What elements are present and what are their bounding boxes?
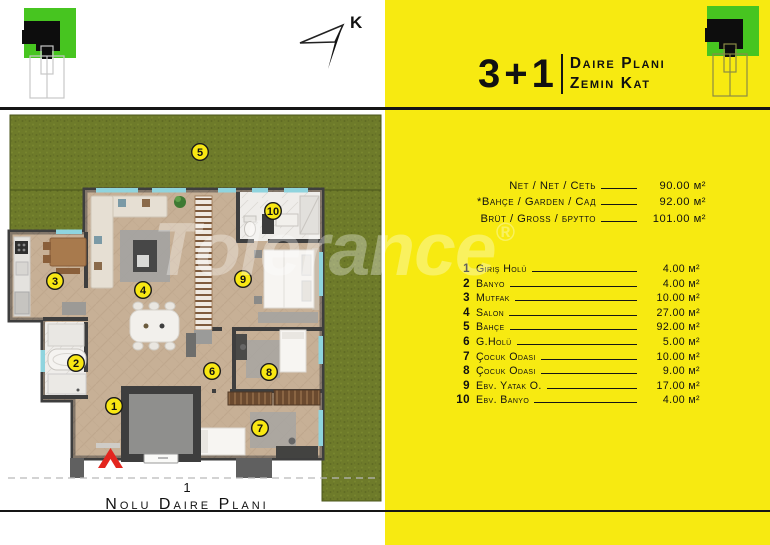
wall-stub-left <box>70 458 84 478</box>
room-label: Mutfak <box>476 292 510 304</box>
room-area: 17.00 м² <box>642 380 700 392</box>
leader-line <box>541 366 637 375</box>
leader-line <box>515 293 637 302</box>
leader-line <box>601 180 637 189</box>
site-keyplan-right <box>697 4 763 98</box>
room-row: 9Ebv. Yatak O.17.00 м² <box>452 379 700 392</box>
plan-title: Daire Planı <box>570 54 665 74</box>
room-number: 5 <box>452 320 470 333</box>
room-label: Salon <box>476 307 504 319</box>
slatted-screen <box>195 196 212 330</box>
room-area: 9.00 м² <box>642 365 700 377</box>
area-label: *Bahçe / Garden / Сад <box>466 196 596 208</box>
wall-stub-right <box>236 458 272 478</box>
room-badge-3: 3 <box>47 273 64 290</box>
leader-line <box>532 263 637 272</box>
leader-line <box>534 395 637 404</box>
room-number: 8 <box>452 364 470 377</box>
svg-text:10: 10 <box>267 206 279 218</box>
leader-line <box>547 380 637 389</box>
room-area: 4.00 м² <box>642 278 700 290</box>
entry-threshold <box>96 443 120 448</box>
header-divider <box>561 54 563 94</box>
room-row: 8Çocuk Odası9.00 м² <box>452 364 700 377</box>
hall-mat <box>194 330 212 344</box>
room-area: 5.00 м² <box>642 336 700 348</box>
room-label: Çocuk Odası <box>476 365 536 377</box>
room-area: 4.00 м² <box>642 263 700 275</box>
room-label: G.Holü <box>476 336 512 348</box>
room-row: 1Giriş Holü4.00 м² <box>452 262 700 275</box>
area-value: 90.00 м² <box>642 180 706 192</box>
room-number: 10 <box>452 393 470 406</box>
area-summary: Net / Net / Сеть 90.00 м² *Bahçe / Garde… <box>466 180 706 229</box>
room-number: 1 <box>452 262 470 275</box>
room-row: 10Ebv. Banyo4.00 м² <box>452 393 700 406</box>
room-number: 7 <box>452 350 470 363</box>
svg-text:5: 5 <box>197 147 203 159</box>
room-list: 1Giriş Holü4.00 м² 2Banyo4.00 м² 3Mutfak… <box>452 262 700 408</box>
room-area: 92.00 м² <box>642 321 700 333</box>
room-number: 4 <box>452 306 470 319</box>
room-badge-4: 4 <box>135 282 152 299</box>
plan-caption: 1 Nolu Daire Planı <box>0 480 374 514</box>
room-badge-1: 1 <box>106 398 123 415</box>
room-label: Ebv. Yatak O. <box>476 380 542 392</box>
floor-title: Zemin Kat <box>570 74 665 94</box>
svg-text:2: 2 <box>73 358 79 370</box>
room-number: 2 <box>452 277 470 290</box>
room-label: Çocuk Odası <box>476 351 536 363</box>
plan-header: 3+1 Daire Planı Zemin Kat <box>478 54 665 94</box>
north-label: K <box>350 13 363 32</box>
svg-text:4: 4 <box>140 285 147 297</box>
area-row: Brüt / Gross / брутто 101.00 м² <box>466 213 706 225</box>
elevator-core <box>121 386 201 463</box>
room-row: 5Bahçe92.00 м² <box>452 320 700 333</box>
leader-line <box>541 351 637 360</box>
room-label: Giriş Holü <box>476 263 527 275</box>
svg-text:1: 1 <box>111 401 117 413</box>
svg-text:8: 8 <box>266 367 272 379</box>
room-area: 4.00 м² <box>642 394 700 406</box>
leader-line <box>510 322 637 331</box>
leader-line <box>601 196 637 205</box>
leader-line <box>517 336 637 345</box>
bottom-divider-line <box>0 510 770 512</box>
area-row: Net / Net / Сеть 90.00 м² <box>466 180 706 192</box>
room-badge-2: 2 <box>68 355 85 372</box>
area-value: 101.00 м² <box>642 213 706 225</box>
room-badge-10: 10 <box>265 203 282 220</box>
leader-line <box>601 213 637 222</box>
north-arrow: K <box>292 6 370 76</box>
room-area: 10.00 м² <box>642 351 700 363</box>
area-row: *Bahçe / Garden / Сад 92.00 м² <box>466 196 706 208</box>
room-number: 9 <box>452 379 470 392</box>
room-badge-8: 8 <box>261 364 278 381</box>
room-label: Ebv. Banyo <box>476 394 529 406</box>
site-keyplan-left <box>14 6 80 100</box>
floor-plan-drawing: 1 2 3 4 5 6 7 8 9 10 <box>0 110 385 510</box>
room-badge-7: 7 <box>252 420 269 437</box>
room-label: Bahçe <box>476 321 505 333</box>
room-area: 27.00 м² <box>642 307 700 319</box>
floor-plan-sheet: K 3+1 Daire Planı Zemin Kat Net / Net / … <box>0 0 770 545</box>
room-row: 3Mutfak10.00 м² <box>452 291 700 304</box>
room-badge-9: 9 <box>235 271 252 288</box>
caption-number: 1 <box>0 480 374 495</box>
svg-text:7: 7 <box>257 423 263 435</box>
room-number: 6 <box>452 335 470 348</box>
room-badge-6: 6 <box>204 363 221 380</box>
room-row: 4Salon27.00 м² <box>452 306 700 319</box>
apartment-type: 3+1 <box>478 54 558 94</box>
area-value: 92.00 м² <box>642 196 706 208</box>
room-row: 7Çocuk Odası10.00 м² <box>452 350 700 363</box>
room-label: Banyo <box>476 278 505 290</box>
room-number: 3 <box>452 291 470 304</box>
room-row: 2Banyo4.00 м² <box>452 277 700 290</box>
svg-text:3: 3 <box>52 276 58 288</box>
top-divider-line <box>0 107 770 110</box>
area-label: Brüt / Gross / брутто <box>466 213 596 225</box>
svg-text:6: 6 <box>209 366 215 378</box>
hall-console <box>186 333 196 357</box>
area-label: Net / Net / Сеть <box>466 180 596 192</box>
room-row: 6G.Holü5.00 м² <box>452 335 700 348</box>
leader-line <box>509 307 637 316</box>
svg-text:9: 9 <box>240 274 246 286</box>
room-badge-5: 5 <box>192 144 209 161</box>
room-area: 10.00 м² <box>642 292 700 304</box>
leader-line <box>510 278 637 287</box>
